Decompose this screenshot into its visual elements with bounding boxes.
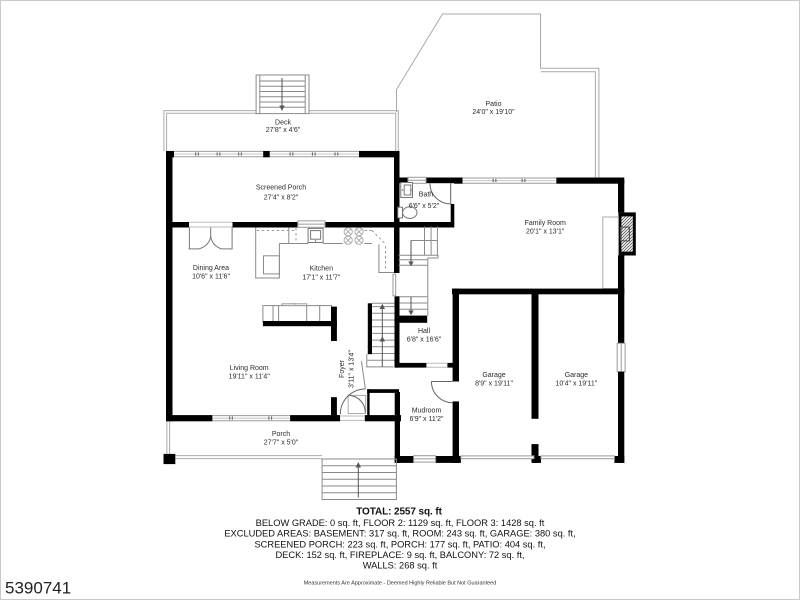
svg-text:Deck: Deck — [275, 120, 291, 127]
svg-text:19'11" x 11'4": 19'11" x 11'4" — [229, 374, 271, 381]
svg-text:Screened Porch: Screened Porch — [256, 185, 306, 192]
svg-text:6'9" x 11'2": 6'9" x 11'2" — [410, 416, 444, 423]
svg-text:SCREENED PORCH: 223 sq. ft, PO: SCREENED PORCH: 223 sq. ft, PORCH: 177 s… — [254, 540, 545, 550]
svg-text:Garage: Garage — [565, 372, 588, 379]
svg-text:27'4" x 8'2": 27'4" x 8'2" — [264, 194, 299, 201]
svg-text:WALLS: 268 sq. ft: WALLS: 268 sq. ft — [363, 561, 438, 571]
svg-text:EXCLUDED AREAS: BASEMENT: 317: EXCLUDED AREAS: BASEMENT: 317 sq. ft, RO… — [224, 529, 575, 539]
svg-text:TOTAL: 2557 sq. ft: TOTAL: 2557 sq. ft — [356, 506, 442, 517]
svg-text:Foyer: Foyer — [339, 359, 346, 378]
svg-text:Mudroom: Mudroom — [412, 408, 442, 415]
svg-text:27'7" x 5'0": 27'7" x 5'0" — [264, 440, 299, 447]
svg-text:Living Room: Living Room — [230, 365, 269, 372]
svg-text:BELOW GRADE: 0 sq. ft, FLOOR 2: BELOW GRADE: 0 sq. ft, FLOOR 2: 1129 sq.… — [256, 518, 545, 528]
svg-text:Bath: Bath — [419, 191, 434, 198]
svg-text:DECK: 152 sq. ft, FIREPLACE: 9: DECK: 152 sq. ft, FIREPLACE: 9 sq. ft, B… — [275, 550, 524, 560]
svg-text:Hall: Hall — [418, 328, 431, 335]
svg-text:Measurements Are Approximate -: Measurements Are Approximate - Deemed Hi… — [304, 580, 497, 586]
svg-text:24'0" x 19'10": 24'0" x 19'10" — [472, 109, 515, 116]
svg-text:Kitchen: Kitchen — [310, 266, 333, 273]
svg-text:27'8" x 4'6": 27'8" x 4'6" — [266, 127, 301, 134]
svg-text:5390741: 5390741 — [5, 579, 71, 598]
svg-text:17'1" x 11'7": 17'1" x 11'7" — [302, 274, 340, 281]
svg-text:10'4" x 19'11": 10'4" x 19'11" — [556, 381, 598, 388]
svg-text:Porch: Porch — [272, 431, 290, 438]
svg-text:20'1" x 13'1": 20'1" x 13'1" — [526, 228, 565, 235]
svg-text:Dining Area: Dining Area — [193, 265, 229, 272]
svg-text:3'11" x 13'4": 3'11" x 13'4" — [348, 350, 355, 388]
svg-text:Family Room: Family Room — [525, 220, 566, 227]
svg-text:8'9" x 19'11": 8'9" x 19'11" — [475, 381, 513, 388]
svg-text:Garage: Garage — [482, 372, 505, 379]
svg-text:10'6" x 11'6": 10'6" x 11'6" — [192, 274, 230, 281]
svg-text:6'8" x 16'6": 6'8" x 16'6" — [407, 337, 442, 344]
svg-text:Patio: Patio — [486, 101, 502, 108]
svg-text:6'6" x 5'2": 6'6" x 5'2" — [409, 203, 440, 210]
